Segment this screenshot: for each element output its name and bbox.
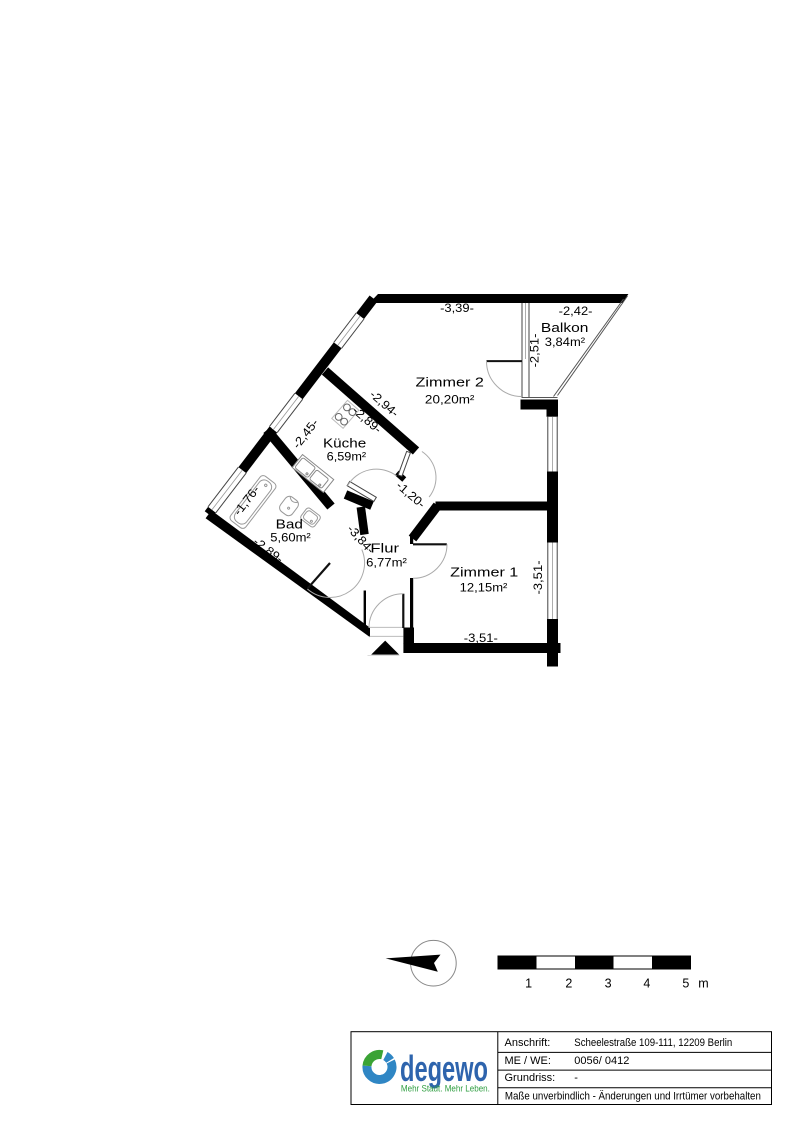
svg-text:Zimmer 1: Zimmer 1 [450,565,518,580]
svg-text:Zimmer 2: Zimmer 2 [416,375,484,390]
svg-text:6,59m²: 6,59m² [327,450,367,464]
svg-text:0056/ 0412: 0056/ 0412 [574,1055,629,1067]
svg-text:12,15m²: 12,15m² [460,580,508,594]
svg-text:3: 3 [605,976,612,990]
svg-text:-2,51-: -2,51- [528,334,542,368]
svg-text:Maße unverbindlich - Änderunge: Maße unverbindlich - Änderungen und Irrt… [505,1091,761,1103]
svg-text:3,84m²: 3,84m² [545,335,585,349]
svg-text:ME / WE:: ME / WE: [505,1055,551,1067]
svg-text:1: 1 [525,976,532,990]
svg-text:2: 2 [565,976,572,990]
svg-text:Scheelestraße 109-111, 12209 B: Scheelestraße 109-111, 12209 Berlin [574,1037,732,1049]
svg-text:Bad: Bad [276,516,303,531]
svg-text:-3,51-: -3,51- [531,560,545,594]
svg-text:5,60m²: 5,60m² [270,531,311,545]
svg-text:-2,42-: -2,42- [559,304,593,318]
svg-text:-3,39-: -3,39- [440,301,474,315]
svg-text:Grundriss:: Grundriss: [505,1072,556,1084]
svg-text:4: 4 [643,976,650,990]
svg-text:Anschrift:: Anschrift: [505,1037,551,1049]
svg-text:m: m [698,976,708,990]
svg-text:6,77m²: 6,77m² [366,556,407,570]
svg-text:5: 5 [682,976,689,990]
svg-text:Küche: Küche [323,436,366,451]
svg-text:20,20m²: 20,20m² [425,393,475,407]
svg-text:-: - [574,1072,578,1084]
svg-text:Balkon: Balkon [541,320,589,335]
svg-text:-3,51-: -3,51- [464,631,498,645]
svg-text:Mehr Stadt. Mehr Leben.: Mehr Stadt. Mehr Leben. [401,1083,490,1093]
